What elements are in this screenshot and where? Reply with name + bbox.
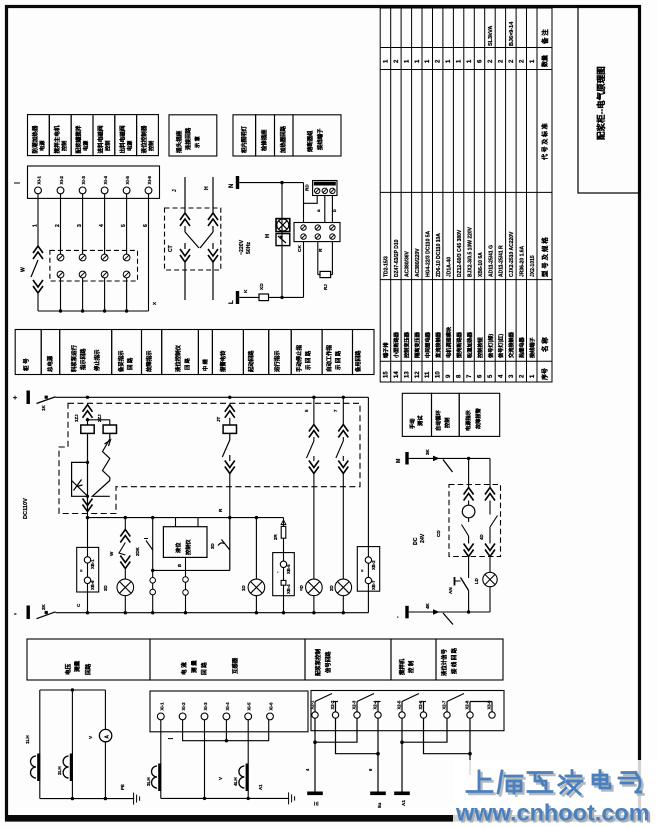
svg-text:4: 4 (305, 768, 310, 771)
svg-text:控制仪: 控制仪 (184, 539, 192, 555)
svg-text:X2-3: X2-3 (352, 700, 357, 710)
svg-text:CK: CK (297, 245, 303, 252)
svg-text:手动: 手动 (408, 419, 416, 429)
svg-text:控制: 控制 (443, 418, 451, 428)
svg-text:柜 号: 柜 号 (22, 358, 30, 372)
svg-text:DZ12-60/3 C45 380V: DZ12-60/3 C45 380V (457, 229, 463, 277)
svg-text:2: 2 (519, 59, 525, 63)
svg-text:4: 4 (99, 224, 105, 227)
svg-text:端子排: 端子排 (382, 342, 390, 358)
svg-text:三: 三 (314, 801, 320, 806)
svg-text:自动循环: 自动循环 (434, 409, 442, 431)
svg-text:2: 2 (488, 59, 494, 63)
svg-text:交流接触器: 交流接触器 (507, 331, 515, 358)
svg-text:示 意: 示 意 (193, 136, 201, 148)
svg-text:控制按钮: 控制按钮 (476, 336, 484, 358)
svg-text:AD11-25/41 R: AD11-25/41 R (499, 245, 505, 277)
svg-text:C: C (76, 603, 81, 607)
svg-text:进料电磁阀: 进料电磁阀 (97, 125, 105, 153)
svg-text:2: 2 (436, 59, 442, 63)
svg-text:CJX2-2510 AC220V: CJX2-2510 AC220V (509, 231, 515, 277)
svg-text:搅拌主电机: 搅拌主电机 (53, 125, 61, 153)
svg-text:XI-5: XI-5 (247, 702, 252, 711)
svg-text:控制: 控制 (147, 141, 155, 151)
svg-text:3D: 3D (210, 543, 215, 549)
svg-text:14: 14 (394, 371, 400, 378)
svg-text:回 路: 回 路 (200, 662, 208, 675)
svg-text:4LH: 4LH (233, 777, 238, 786)
svg-text:7: 7 (333, 409, 338, 412)
svg-text:吸湿加热器: 吸湿加热器 (465, 331, 473, 358)
svg-text:-: - (275, 571, 280, 573)
svg-text:a: a (316, 209, 321, 212)
svg-text:电源: 电源 (38, 140, 46, 151)
svg-text:6: 6 (478, 374, 484, 378)
svg-text:XI-1: XI-1 (159, 702, 164, 711)
svg-text:电源指示: 电源指示 (464, 410, 472, 431)
svg-text:CT: CT (168, 245, 174, 252)
svg-text:2: 2 (55, 224, 61, 227)
svg-text:名 称: 名 称 (540, 337, 549, 352)
svg-text:2ZJ: 2ZJ (97, 414, 102, 422)
svg-text:插头插座: 插头插座 (175, 130, 183, 153)
svg-text:X2-5: X2-5 (397, 700, 402, 710)
svg-text:3LH: 3LH (146, 777, 151, 786)
svg-text:控制: 控制 (60, 141, 68, 151)
svg-text:LD: LD (474, 578, 479, 584)
svg-text:HG4-22/3 DC110 5A: HG4-22/3 DC110 5A (426, 230, 432, 277)
svg-text:5: 5 (488, 374, 494, 378)
svg-text:XI-3: XI-3 (81, 176, 86, 185)
svg-text:配浆罐搅拌: 配浆罐搅拌 (75, 125, 83, 153)
svg-text:回 路: 回 路 (183, 357, 191, 370)
svg-text:电源: 电源 (82, 140, 90, 151)
svg-text:V: V (88, 735, 93, 739)
svg-text:JD1A-40: JD1A-40 (446, 257, 452, 277)
svg-text:JR36-20 1.6A: JR36-20 1.6A (520, 245, 526, 277)
svg-text:5u: 5u (377, 802, 382, 808)
svg-text:XD: XD (259, 283, 265, 290)
svg-text:=: = (360, 569, 365, 572)
svg-text:K: K (243, 289, 249, 293)
svg-text:JT: JT (216, 417, 221, 422)
svg-text:XB-7: XB-7 (371, 580, 376, 590)
svg-text:XI-1: XI-1 (37, 176, 42, 185)
svg-text:备用回路: 备用回路 (354, 350, 362, 373)
svg-text:H: H (204, 186, 210, 190)
svg-text:序号: 序号 (541, 368, 549, 381)
svg-text:信号回路: 信号回路 (324, 651, 332, 673)
svg-text:2DK: 2DK (135, 546, 140, 556)
svg-text:停止指示: 停止指示 (93, 349, 101, 371)
svg-text:备妥指示: 备妥指示 (117, 350, 125, 373)
svg-text:液位计信号: 液位计信号 (440, 648, 448, 676)
svg-text:AC380/220V: AC380/220V (415, 248, 421, 277)
svg-text:R: R (218, 508, 223, 512)
svg-text:TD2-15/3: TD2-15/3 (384, 256, 390, 277)
svg-text:=D: =D (299, 585, 304, 591)
svg-text:BJ6×9-14: BJ6×9-14 (509, 21, 515, 46)
svg-text:接线端子: 接线端子 (316, 128, 324, 150)
svg-text:W: W (109, 551, 114, 556)
svg-text:5: 5 (121, 224, 127, 227)
svg-text:-: - (14, 609, 17, 618)
svg-text:DC: DC (413, 537, 419, 545)
svg-text:XI-2: XI-2 (59, 176, 64, 185)
svg-text:L: L (229, 300, 235, 304)
svg-text:11: 11 (425, 371, 431, 378)
svg-text:故障报警: 故障报警 (474, 407, 482, 429)
svg-text:-: - (395, 616, 401, 618)
svg-text:控制变压器: 控制变压器 (403, 331, 411, 358)
svg-text:1: 1 (457, 59, 463, 63)
svg-text:中间继电器: 中间继电器 (424, 331, 432, 358)
svg-text:2D: 2D (329, 585, 334, 591)
svg-text:自动工作指: 自动工作指 (325, 344, 333, 372)
svg-text:~220V: ~220V (239, 239, 245, 255)
svg-text:XI-6: XI-6 (269, 702, 274, 711)
svg-text:3: 3 (509, 374, 515, 378)
svg-text:熔断器组: 熔断器组 (306, 130, 314, 152)
svg-text:M: M (396, 459, 402, 463)
svg-text:AC380/36V: AC380/36V (405, 250, 411, 277)
svg-text:测量: 测量 (73, 660, 81, 672)
svg-text:AD11-25/41 G: AD11-25/41 G (488, 245, 494, 277)
svg-text:中 继: 中 继 (201, 358, 209, 371)
svg-text:RJ: RJ (323, 284, 328, 290)
svg-text:回路: 回路 (84, 663, 92, 675)
svg-text:A1: A1 (401, 800, 406, 806)
svg-text:N: N (229, 184, 235, 188)
svg-text:AN: AN (448, 587, 453, 594)
svg-text:1: 1 (33, 224, 39, 227)
svg-text:1: 1 (467, 59, 473, 63)
svg-text:电 流: 电 流 (180, 662, 188, 675)
svg-text:RD: RD (305, 184, 310, 191)
svg-text:1K: 1K (41, 404, 46, 411)
svg-text:型 号 及 规 格: 型 号 及 规 格 (540, 237, 549, 277)
svg-text:XI-2: XI-2 (181, 702, 186, 711)
svg-text:防潮加热器: 防潮加热器 (31, 125, 39, 153)
svg-text:=: = (79, 569, 84, 572)
svg-text:1: 1 (425, 59, 431, 63)
svg-text:12: 12 (415, 371, 421, 378)
svg-text:SL3kVA: SL3kVA (488, 26, 494, 46)
svg-text:液位控制仪: 液位控制仪 (174, 344, 182, 372)
svg-text:XB-4: XB-4 (286, 584, 291, 594)
svg-text:4D: 4D (479, 534, 484, 540)
svg-text:2: 2 (509, 59, 515, 63)
svg-text:接线端子: 接线端子 (528, 336, 536, 358)
svg-text:2: 2 (498, 59, 504, 63)
svg-text:X: X (152, 302, 157, 305)
svg-text:2: 2 (394, 59, 400, 63)
svg-text:指示回路: 指示回路 (79, 348, 87, 370)
svg-text:1: 1 (530, 374, 536, 378)
svg-text:ZD6-10 DC110 10A: ZD6-10 DC110 10A (436, 233, 442, 277)
svg-text:塑壳断路器: 塑壳断路器 (455, 331, 463, 358)
svg-text:1: 1 (446, 59, 452, 63)
svg-text:7: 7 (467, 374, 473, 378)
svg-text:2: 2 (519, 374, 525, 378)
svg-text:电压: 电压 (64, 663, 72, 675)
svg-text:XB6-10 6A: XB6-10 6A (478, 252, 484, 277)
svg-text:CD: CD (436, 530, 441, 537)
svg-text:检修插座: 检修插座 (260, 129, 268, 151)
svg-text:信号灯(红): 信号灯(红) (497, 334, 505, 358)
svg-text:8: 8 (457, 374, 463, 378)
svg-text:6: 6 (143, 224, 149, 227)
svg-text:9: 9 (446, 374, 452, 378)
svg-text:电机调速模块: 电机调速模块 (444, 326, 452, 358)
svg-text:控制: 控制 (104, 141, 112, 151)
svg-text:XB-6: XB-6 (90, 580, 95, 590)
svg-text:J: J (172, 189, 178, 192)
svg-text:搅拌机: 搅拌机 (398, 658, 406, 675)
svg-text:X2-1: X2-1 (310, 700, 315, 710)
svg-text:5: 5 (304, 409, 309, 412)
svg-text:DZ47-63/2P D10: DZ47-63/2P D10 (394, 239, 400, 277)
svg-text:6: 6 (368, 768, 373, 771)
svg-text:互感器: 互感器 (231, 657, 239, 674)
svg-text:1: 1 (415, 59, 421, 63)
svg-text:2K: 2K (41, 603, 46, 610)
svg-text:液位: 液位 (174, 542, 182, 553)
svg-text:测试: 测试 (416, 415, 424, 426)
svg-text:测 量: 测 量 (190, 660, 198, 673)
svg-text:数量: 数量 (541, 55, 549, 67)
svg-text:W: W (21, 267, 27, 272)
svg-text:R: R (318, 248, 324, 252)
svg-text:起动回路: 起动回路 (247, 350, 255, 373)
svg-text:6: 6 (478, 59, 484, 63)
svg-text:DC110V: DC110V (23, 498, 29, 519)
svg-text:4: 4 (498, 374, 504, 378)
svg-text:1LH: 1LH (25, 735, 30, 744)
svg-text:www.cnhoot.com: www.cnhoot.com (455, 800, 650, 826)
svg-text:XB-1: XB-1 (90, 559, 95, 569)
svg-text:电源: 电源 (125, 140, 133, 151)
svg-text:B: B (177, 564, 182, 567)
svg-text:1: 1 (530, 59, 536, 63)
svg-text:BJX2-3/0.5 10W 220V: BJX2-3/0.5 10W 220V (467, 226, 473, 277)
svg-text:13: 13 (404, 371, 410, 378)
svg-text:15: 15 (383, 371, 389, 378)
svg-text:连接回路: 连接回路 (184, 127, 192, 150)
svg-text:隔离变压器: 隔离变压器 (413, 331, 421, 358)
svg-text:小型断路器: 小型断路器 (392, 331, 400, 358)
svg-text:代 号 及 标 准: 代 号 及 标 准 (541, 123, 549, 161)
svg-text:配浆柜--电气原理图: 配浆柜--电气原理图 (596, 66, 606, 140)
svg-text:A1: A1 (258, 784, 263, 790)
svg-text:柜内照明灯: 柜内照明灯 (240, 125, 248, 154)
svg-text:配浆泵控制: 配浆泵控制 (314, 648, 322, 676)
svg-text:1ZJ: 1ZJ (74, 414, 79, 422)
svg-text:XI-4: XI-4 (103, 176, 108, 185)
svg-text:24V: 24V (420, 533, 426, 543)
svg-text:X2-7: X2-7 (442, 700, 447, 710)
svg-text:示 回 路: 示 回 路 (334, 350, 342, 370)
svg-text:3D: 3D (103, 585, 108, 591)
svg-text:3: 3 (77, 224, 83, 227)
svg-text:手动停止指: 手动停止指 (295, 344, 303, 372)
svg-text:10: 10 (436, 371, 442, 378)
svg-text:X2-8: X2-8 (465, 700, 470, 710)
svg-text:V: V (218, 777, 223, 780)
svg-text:JX2-1015: JX2-1015 (530, 255, 536, 277)
svg-text:热继电器: 热继电器 (518, 336, 526, 358)
svg-text:PE: PE (120, 784, 125, 790)
svg-text:1: 1 (383, 59, 389, 63)
svg-text:XI-5: XI-5 (125, 176, 130, 185)
svg-text:直流接触器: 直流接触器 (434, 331, 442, 358)
svg-text:XI-3: XI-3 (203, 702, 208, 711)
svg-text:备 注: 备 注 (540, 29, 549, 45)
svg-text:故障指示: 故障指示 (145, 350, 153, 372)
svg-text:2R: 2R (273, 534, 278, 540)
svg-text:4K: 4K (425, 602, 430, 609)
svg-text:+: + (13, 395, 17, 402)
svg-text:2LH: 2LH (57, 766, 62, 775)
svg-text:50Hz: 50Hz (246, 241, 252, 254)
svg-text:出料电磁阀: 出料电磁阀 (118, 125, 126, 153)
svg-text:XB-2: XB-2 (371, 560, 376, 570)
svg-text:H: H (265, 234, 271, 238)
svg-text:1: 1 (404, 59, 410, 63)
svg-text:总电源: 总电源 (46, 355, 54, 372)
svg-text:b: b (332, 209, 337, 212)
svg-text:液位控制器: 液位控制器 (140, 125, 148, 153)
svg-text:3K: 3K (425, 448, 430, 455)
svg-text:信号灯(绿): 信号灯(绿) (486, 334, 494, 358)
svg-text:A: A (105, 735, 111, 739)
svg-text:回 路: 回 路 (126, 357, 134, 370)
svg-text:料浆泵运行: 料浆泵运行 (70, 344, 78, 372)
svg-text:XB-5: XB-5 (286, 564, 291, 574)
svg-text:示 回 路: 示 回 路 (304, 350, 312, 370)
svg-text:接 线 回 路: 接 线 回 路 (450, 647, 458, 674)
svg-text:控 制: 控 制 (407, 660, 415, 673)
svg-text:XI-6: XI-6 (147, 176, 152, 185)
svg-text:运行指示: 运行指示 (273, 350, 281, 372)
svg-text:加热器回路: 加热器回路 (279, 125, 287, 154)
svg-text:报警电铃: 报警电铃 (219, 350, 227, 372)
svg-text:1D: 1D (241, 585, 246, 591)
svg-text:XI-4: XI-4 (225, 702, 230, 711)
